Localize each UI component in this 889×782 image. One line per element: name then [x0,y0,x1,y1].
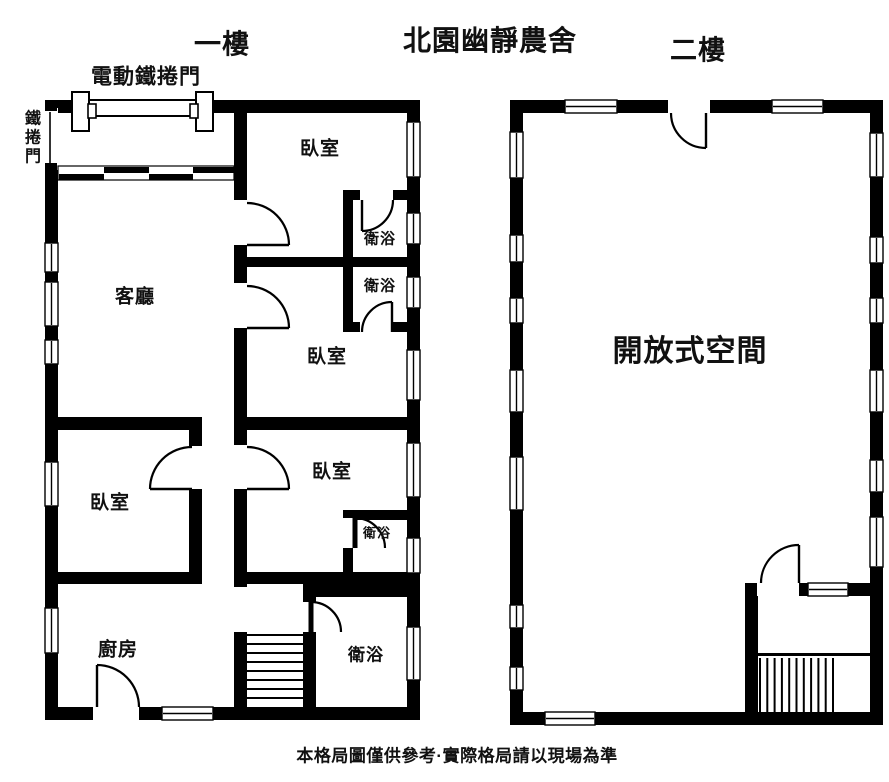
wall [189,417,202,584]
door-opening [757,583,799,596]
door-swing-arc [247,286,289,328]
disclaimer-text: 本格局圖僅供參考·實際格局請以現場為準 [296,748,617,765]
garage-door-bracket [72,92,89,131]
wall [234,572,420,584]
garage-door-bar [82,100,204,116]
door-opening [343,518,353,548]
garage-door-bracket-tab [88,104,96,118]
door-opening [234,445,247,489]
door-opening [45,108,58,170]
wall [58,572,202,584]
door-swing-arc [150,447,192,489]
wall [234,257,420,267]
floor2-title: 二樓 [670,38,726,65]
shutter-segment [193,167,234,173]
bedroom-3-label: 臥室 [312,463,352,482]
door-swing-arc [97,665,139,707]
bedroom-1-label: 臥室 [300,140,340,159]
wall [234,113,247,587]
door-opening [189,446,202,489]
bathroom-1-label: 衛浴 [364,232,396,247]
living-room-label: 客廳 [115,288,155,307]
door-opening [668,100,710,113]
door-opening [234,200,247,245]
stair-landing-line [755,653,870,656]
rolling-door-label: 鐵捲門 [22,110,38,167]
bathroom-4-label: 衛浴 [348,647,384,664]
electric-rolling-door-label: 電動鐵捲門 [91,67,201,88]
wall [213,100,420,113]
shutter-segment [59,174,104,180]
open-space-label: 開放式空間 [613,337,768,367]
door-opening [93,707,139,720]
door-swing-arc [247,203,289,245]
door-opening [360,322,393,332]
floor1-title: 一樓 [194,32,250,59]
bedroom-4-label: 臥室 [90,494,130,513]
wall [58,417,202,430]
bathroom-2-label: 衛浴 [364,279,396,294]
wall [303,584,420,597]
door-swing-arc [671,113,706,148]
side-rolling-door-cap [45,163,57,170]
wall [234,632,247,720]
door-swing-arc [761,545,799,583]
shutter-segment [104,167,149,173]
side-rolling-door-cap [45,104,57,111]
bedroom-2-label: 臥室 [307,348,347,367]
shutter-segment [149,174,193,180]
door-opening [360,190,393,200]
garage-door-bracket-tab [190,104,198,118]
door-opening [234,283,247,328]
page-title: 北園幽靜農舍 [403,27,577,55]
bathroom-3-label: 衛浴 [363,527,391,540]
floorplan-page: 一樓 北園幽靜農舍 二樓 電動鐵捲門 鐵捲門 本格局圖僅供參考·實際格局請以現場… [0,0,889,782]
wall [343,190,353,332]
floorplan-canvas [0,0,889,782]
door-swing-arc [247,447,289,489]
wall [234,417,420,430]
kitchen-label: 廚房 [98,641,138,660]
door-swing-arc [362,200,393,231]
